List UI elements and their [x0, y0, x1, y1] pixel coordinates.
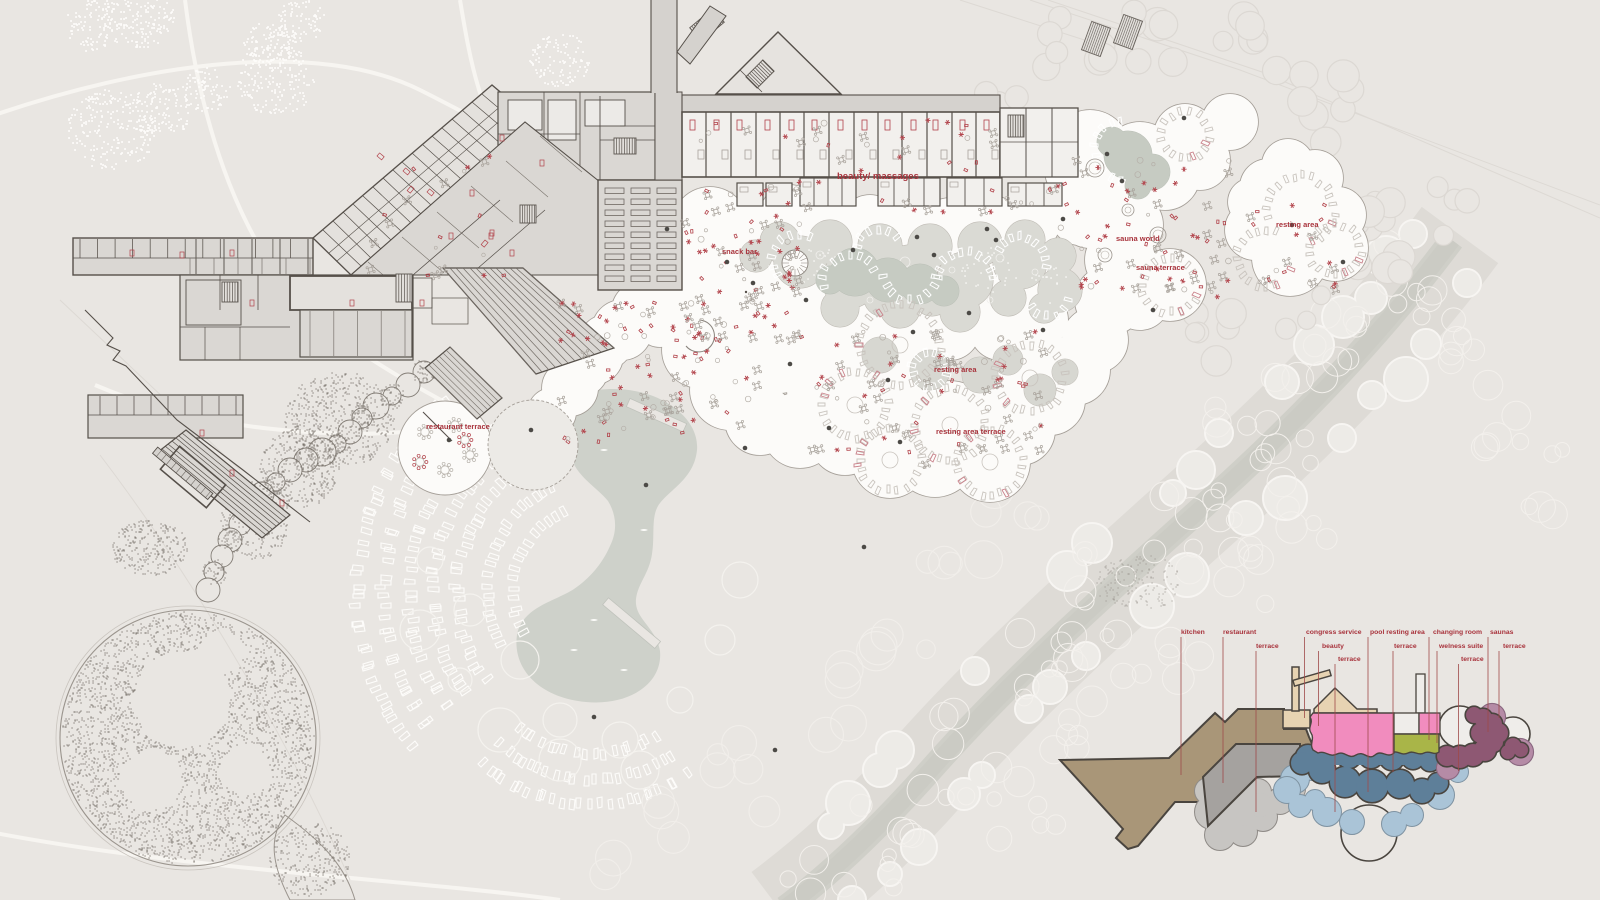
svg-text:sauna terrace: sauna terrace	[1136, 263, 1185, 272]
svg-text:restaurant: restaurant	[1223, 629, 1257, 636]
svg-text:beauty: beauty	[1322, 643, 1344, 650]
svg-text:pool resting area: pool resting area	[1370, 629, 1425, 636]
svg-text:congress service: congress service	[1306, 629, 1362, 636]
svg-text:welness suite: welness suite	[1438, 643, 1483, 650]
svg-text:terrace: terrace	[1461, 656, 1484, 663]
svg-text:changing room: changing room	[1433, 629, 1482, 636]
svg-text:sauna world: sauna world	[1116, 234, 1160, 243]
svg-text:terrace: terrace	[1338, 656, 1361, 663]
svg-text:resting area terrace: resting area terrace	[936, 427, 1006, 436]
svg-text:snack bar: snack bar	[722, 247, 757, 256]
svg-text:resting area: resting area	[1276, 220, 1319, 229]
svg-text:beauty/ massages: beauty/ massages	[837, 171, 919, 182]
svg-text:kitchen: kitchen	[1181, 629, 1205, 636]
svg-text:restaurant terrace: restaurant terrace	[426, 422, 490, 431]
svg-text:resting area: resting area	[934, 365, 977, 374]
svg-text:terrace: terrace	[1256, 643, 1279, 650]
svg-text:terrace: terrace	[1394, 643, 1417, 650]
svg-text:terrace: terrace	[1503, 643, 1526, 650]
svg-text:saunas: saunas	[1490, 629, 1514, 636]
